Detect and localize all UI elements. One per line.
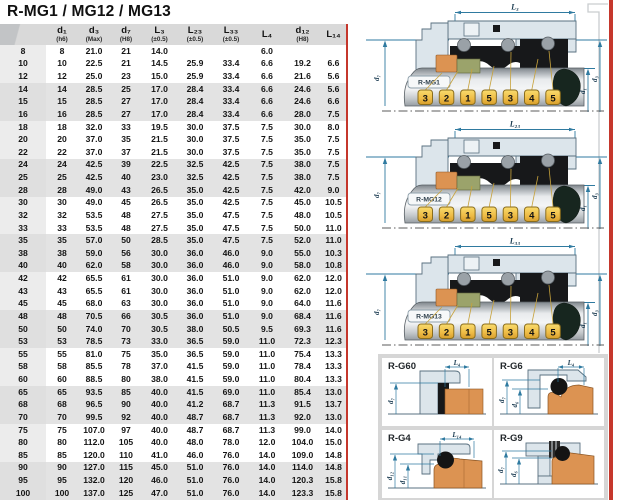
callout-number: 5: [550, 210, 556, 221]
table-cell: 30.5: [142, 323, 177, 336]
table-cell: 65.5: [78, 272, 110, 285]
table-cell: 28.4: [177, 96, 213, 109]
table-cell: 21.5: [142, 133, 177, 146]
table-cell: 15.0: [142, 70, 177, 83]
table-cell: 32: [46, 209, 78, 222]
table-cell: 12.0: [249, 436, 285, 449]
table-cell: 32.5: [177, 159, 213, 172]
table-row: 100100137.012547.051.076.014.0123.315.8: [0, 487, 347, 500]
table-cell: 42.5: [213, 184, 249, 197]
table-cell: 16: [0, 108, 46, 121]
table-cell: 7.5: [320, 146, 347, 159]
o-ring: [555, 446, 570, 461]
table-cell: 49.0: [78, 197, 110, 210]
table-cell: 41.5: [177, 386, 213, 399]
table-cell: 85: [0, 449, 46, 462]
table-row: 484870.56630.536.051.09.068.411.6: [0, 310, 347, 323]
table-cell: 14.0: [249, 487, 285, 500]
table-cell: 17.0: [142, 108, 177, 121]
table-cell: 76.0: [213, 474, 249, 487]
table-cell: 36.5: [177, 348, 213, 361]
table-cell: 15.0: [320, 436, 347, 449]
table-cell: 85: [46, 449, 78, 462]
table-cell: 100: [0, 487, 46, 500]
seat-diagram-r-g60: R-G60 L₄ d₇: [382, 358, 492, 426]
table-cell: 32.5: [177, 171, 213, 184]
table-cell: 17.0: [142, 96, 177, 109]
table-cell: 7.5: [249, 222, 285, 235]
table-cell: 33: [0, 222, 46, 235]
table-cell: 12: [0, 70, 46, 83]
column-header: L₄: [249, 24, 285, 45]
table-cell: 9.0: [249, 247, 285, 260]
table-cell: 95: [0, 474, 46, 487]
table-cell: 78.0: [213, 436, 249, 449]
table-cell: 23.0: [142, 171, 177, 184]
table-cell: 93.5: [78, 386, 110, 399]
seat-ring: [445, 389, 483, 414]
table-row: 555581.07535.036.559.011.075.413.3: [0, 348, 347, 361]
table-row: 585885.57837.041.559.011.078.413.3: [0, 361, 347, 374]
table-cell: 85.4: [285, 386, 320, 399]
table-cell: 14.0: [142, 45, 177, 58]
table-cell: 40: [46, 260, 78, 273]
table-cell: 65.5: [78, 285, 110, 298]
table-cell: 30.5: [142, 310, 177, 323]
table-cell: 53.5: [78, 209, 110, 222]
table-cell: 85: [110, 386, 142, 399]
table-cell: 11.3: [249, 411, 285, 424]
table-row: 535378.57333.036.559.011.072.312.3: [0, 335, 347, 348]
spec-table-header: d₁(h6)d₃(Max)d₇(H8)L₃(±0.5)L₂₃(±0.5)L₃₃(…: [0, 24, 347, 45]
drive-pin: [493, 25, 500, 32]
collar-orange: [436, 172, 457, 189]
table-cell: 7.5: [249, 159, 285, 172]
table-cell: 27: [110, 108, 142, 121]
table-cell: 69.0: [213, 386, 249, 399]
table-cell: 15: [0, 96, 46, 109]
table-cell: 7.5: [249, 197, 285, 210]
table-cell: 120.3: [285, 474, 320, 487]
table-cell: 55: [0, 348, 46, 361]
table-cell: 30.0: [142, 285, 177, 298]
table-cell: 41.5: [177, 373, 213, 386]
table-cell: 52.0: [285, 234, 320, 247]
table-cell: 78.5: [78, 335, 110, 348]
table-cell: 16: [46, 108, 78, 121]
table-cell: 7.5: [320, 171, 347, 184]
table-cell: 42.5: [213, 171, 249, 184]
table-cell: 51.0: [213, 272, 249, 285]
table-cell: 21.6: [285, 70, 320, 83]
table-row: 707099.59240.048.768.711.392.013.0: [0, 411, 347, 424]
table-cell: 11.0: [249, 386, 285, 399]
table-cell: 37.0: [142, 361, 177, 374]
table-cell: 80: [0, 436, 46, 449]
column-header: d₃(Max): [78, 24, 110, 45]
table-cell: 78.4: [285, 361, 320, 374]
table-cell: 11.6: [320, 310, 347, 323]
table-cell: 30.0: [142, 272, 177, 285]
table-row: 353557.05028.535.047.57.552.011.0: [0, 234, 347, 247]
callout-number: 1: [465, 210, 471, 221]
d3-dimension-label: d₃: [591, 309, 599, 316]
drive-pin: [493, 142, 500, 149]
table-cell: 11.0: [249, 361, 285, 374]
seat-name-label: R-G6: [500, 361, 523, 372]
table-cell: 33: [46, 222, 78, 235]
column-header: d₇(H8): [110, 24, 142, 45]
top-dimension-label: L₄: [567, 359, 575, 367]
table-cell: 47.5: [213, 209, 249, 222]
table-cell: 9.0: [249, 272, 285, 285]
seat-diagram-r-g6: R-G6 L₄ d₇ d₆: [494, 358, 604, 426]
table-row: 8080112.010540.048.078.012.0104.015.0: [0, 436, 347, 449]
table-cell: 92.0: [285, 411, 320, 424]
table-cell: 10: [0, 58, 46, 71]
table-cell: 42.5: [78, 159, 110, 172]
table-cell: 85.5: [78, 361, 110, 374]
table-cell: 112.0: [78, 436, 110, 449]
table-row: 454568.06330.036.051.09.064.011.6: [0, 298, 347, 311]
table-cell: 46.0: [213, 247, 249, 260]
table-cell: 42.5: [213, 159, 249, 172]
table-cell: 22.5: [142, 159, 177, 172]
table-cell: 35.0: [142, 348, 177, 361]
callout-number: 3: [423, 210, 428, 221]
table-cell: 11.0: [249, 373, 285, 386]
table-cell: 48.7: [177, 411, 213, 424]
table-cell: 72.3: [285, 335, 320, 348]
table-row: 8585120.011041.046.076.014.0109.014.8: [0, 449, 347, 462]
table-cell: 104.0: [285, 436, 320, 449]
table-cell: 68.4: [285, 310, 320, 323]
table-cell: 26.5: [142, 184, 177, 197]
length-dimension-label: L₂₃: [509, 120, 521, 129]
table-cell: 40.0: [142, 386, 177, 399]
table-cell: 109.0: [285, 449, 320, 462]
table-cell: 47.5: [213, 222, 249, 235]
table-cell: 66: [110, 310, 142, 323]
table-cell: 21.0: [78, 45, 110, 58]
top-dimension-label: L₁₄: [451, 431, 462, 439]
callout-number: 5: [487, 327, 493, 338]
left-dimension-label-2: d₆: [511, 401, 519, 408]
length-dimension-label: L₃₃: [509, 237, 521, 246]
table-cell: 25: [0, 171, 46, 184]
table-row: 434365.56130.036.051.09.062.012.0: [0, 285, 347, 298]
table-cell: 51.0: [177, 487, 213, 500]
table-cell: 70: [110, 323, 142, 336]
table-cell: 73: [110, 335, 142, 348]
table-cell: 57.0: [78, 234, 110, 247]
column-header: L₂₃(±0.5): [177, 24, 213, 45]
table-cell: 36.5: [177, 335, 213, 348]
table-cell: 11.6: [320, 323, 347, 336]
table-cell: 38.0: [142, 373, 177, 386]
table-cell: 40.0: [142, 399, 177, 412]
o-ring: [551, 378, 568, 395]
table-cell: 70.5: [78, 310, 110, 323]
table-cell: 33.4: [213, 58, 249, 71]
table-cell: 69.3: [285, 323, 320, 336]
table-cell: 14.0: [320, 424, 347, 437]
table-cell: 6.0: [249, 45, 285, 58]
d7-dimension-label: d₇: [373, 308, 381, 315]
table-cell: 36.0: [177, 272, 213, 285]
table-cell: 27.5: [142, 209, 177, 222]
table-cell: 32.0: [78, 121, 110, 134]
table-row: 9090127.011545.051.076.014.0114.014.8: [0, 462, 347, 475]
column-header: L₃₃(±0.5): [213, 24, 249, 45]
table-cell: 51.0: [213, 310, 249, 323]
table-row: 424265.56130.036.051.09.062.012.0: [0, 272, 347, 285]
table-cell: 70: [0, 411, 46, 424]
table-cell: 25.9: [177, 70, 213, 83]
table-cell: 81.0: [78, 348, 110, 361]
table-cell: [285, 45, 320, 58]
table-row: 323253.54827.535.047.57.548.010.5: [0, 209, 347, 222]
table-cell: 40.0: [142, 411, 177, 424]
table-cell: 76.0: [213, 449, 249, 462]
table-cell: 120.0: [78, 449, 110, 462]
left-dimension-label: d₁₂: [386, 471, 394, 480]
seat-diagram-r-g4: R-G4 L₁₄ d₁₂ d₁₁: [382, 430, 492, 498]
table-cell: 110: [110, 449, 142, 462]
table-cell: 60: [46, 373, 78, 386]
table-cell: 25.9: [177, 58, 213, 71]
table-cell: 33.0: [142, 335, 177, 348]
table-cell: 26.5: [142, 197, 177, 210]
table-row: 7575107.09740.048.768.711.399.014.0: [0, 424, 347, 437]
callout-number: 2: [444, 93, 449, 104]
table-cell: 19.5: [142, 121, 177, 134]
table-cell: 42: [0, 272, 46, 285]
table-cell: 49.0: [78, 184, 110, 197]
table-cell: 43: [110, 184, 142, 197]
table-cell: 28.0: [285, 108, 320, 121]
table-cell: 92: [110, 411, 142, 424]
d7-dimension-label: d₇: [373, 74, 381, 81]
table-cell: 78: [110, 361, 142, 374]
table-cell: 9.0: [249, 298, 285, 311]
table-cell: 76.0: [213, 487, 249, 500]
table-cell: 75: [46, 424, 78, 437]
table-cell: 11.3: [249, 399, 285, 412]
table-cell: 42: [46, 272, 78, 285]
seal-diagram-r-mg12: R-MG12 3215345 L₂₃ d₇ d₁ d₃: [352, 117, 610, 234]
table-cell: 80: [46, 436, 78, 449]
table-cell: 48: [110, 209, 142, 222]
table-cell: 10.5: [320, 197, 347, 210]
table-cell: 50.0: [285, 222, 320, 235]
collar-olive: [457, 59, 480, 73]
table-cell: 61: [110, 285, 142, 298]
callout-number: 2: [444, 327, 449, 338]
table-cell: 48: [110, 222, 142, 235]
table-cell: 65: [0, 386, 46, 399]
callout-numbers: 3215345: [418, 324, 560, 339]
table-cell: 11.0: [249, 348, 285, 361]
table-cell: 58: [46, 361, 78, 374]
column-header: L₁₄: [320, 24, 347, 45]
table-cell: 37.5: [213, 121, 249, 134]
table-cell: 5.6: [320, 70, 347, 83]
table-cell: 10: [46, 58, 78, 71]
table-cell: 21: [110, 45, 142, 58]
table-cell: 21.5: [142, 146, 177, 159]
table-cell: 36.0: [177, 298, 213, 311]
table-cell: 36.0: [177, 260, 213, 273]
table-cell: 12: [46, 70, 78, 83]
table-row: 151528.52717.028.433.46.624.66.6: [0, 96, 347, 109]
table-cell: 30.0: [177, 121, 213, 134]
table-cell: 8: [0, 45, 46, 58]
table-cell: 40: [0, 260, 46, 273]
table-cell: 75: [0, 424, 46, 437]
left-dimension-label: d₇: [498, 396, 506, 403]
table-row: 686896.59040.041.268.711.391.513.7: [0, 399, 347, 412]
table-cell: 37.0: [78, 146, 110, 159]
table-cell: 28: [46, 184, 78, 197]
table-cell: 30: [46, 197, 78, 210]
table-cell: 35: [110, 133, 142, 146]
table-cell: 27: [110, 96, 142, 109]
table-cell: 123.3: [285, 487, 320, 500]
table-cell: 64.0: [285, 298, 320, 311]
table-cell: 25: [46, 171, 78, 184]
table-row: 242442.53922.532.542.57.538.07.5: [0, 159, 347, 172]
table-cell: 10.3: [320, 247, 347, 260]
collar-orange: [436, 289, 457, 306]
table-cell: 63: [110, 298, 142, 311]
table-cell: 13.3: [320, 373, 347, 386]
left-dimension-label-2: d₆: [510, 470, 518, 477]
d1-dimension-label: d₁: [579, 322, 587, 328]
table-cell: 45: [110, 197, 142, 210]
table-cell: 35.0: [285, 146, 320, 159]
table-cell: 95: [46, 474, 78, 487]
table-cell: 27.5: [142, 222, 177, 235]
table-cell: 7.5: [249, 234, 285, 247]
table-cell: 35: [0, 234, 46, 247]
left-dimension-label: d₇: [497, 466, 505, 473]
table-row: 202037.03521.530.037.57.535.07.5: [0, 133, 347, 146]
table-cell: 41.0: [142, 449, 177, 462]
table-cell: 22: [0, 146, 46, 159]
table-cell: 28.4: [177, 83, 213, 96]
table-cell: 80.4: [285, 373, 320, 386]
red-divider-line: [346, 24, 349, 500]
table-cell: 35.0: [177, 234, 213, 247]
callout-numbers: 3215345: [418, 207, 560, 222]
table-cell: 37.5: [213, 146, 249, 159]
collar-orange: [436, 55, 457, 72]
table-row: 656593.58540.041.569.011.085.413.0: [0, 386, 347, 399]
table-cell: 19.2: [285, 58, 320, 71]
callout-number: 1: [465, 93, 471, 104]
seat-diagram-r-g9: R-G9 d₇ d₆: [494, 430, 604, 498]
table-cell: 6.6: [320, 58, 347, 71]
table-cell: 68: [46, 399, 78, 412]
d3-dimension-label: d₃: [591, 75, 599, 82]
table-cell: 46.0: [213, 260, 249, 273]
table-cell: 7.5: [320, 108, 347, 121]
table-cell: 10.8: [320, 260, 347, 273]
table-cell: 58: [110, 260, 142, 273]
seat-diagrams-panel: R-G60 L₄ d₇ R-G6: [378, 354, 608, 500]
table-cell: 14.0: [249, 474, 285, 487]
table-row: 8821.02114.06.0: [0, 45, 347, 58]
table-cell: 55: [46, 348, 78, 361]
table-cell: 41.5: [177, 361, 213, 374]
table-cell: [213, 45, 249, 58]
table-cell: 30.0: [285, 121, 320, 134]
table-cell: 14.8: [320, 462, 347, 475]
table-cell: 12.0: [320, 272, 347, 285]
table-cell: 24.6: [285, 83, 320, 96]
table-cell: 9.0: [249, 310, 285, 323]
table-cell: 50: [110, 234, 142, 247]
table-row: 383859.05630.036.046.09.055.010.3: [0, 247, 347, 260]
table-cell: 6.6: [249, 70, 285, 83]
table-cell: 48: [46, 310, 78, 323]
column-header: d₁(h6): [46, 24, 78, 45]
table-cell: 97: [110, 424, 142, 437]
table-cell: 30.0: [177, 146, 213, 159]
table-cell: 15: [46, 96, 78, 109]
table-cell: 18: [0, 121, 46, 134]
table-cell: 58.0: [285, 260, 320, 273]
table-cell: 35.0: [177, 197, 213, 210]
table-cell: 12.3: [320, 335, 347, 348]
table-cell: 55.0: [285, 247, 320, 260]
seal-diagrams-column: R-MG1 3215345 L₃ d₇ d₁ d₃: [352, 0, 610, 354]
table-cell: 33.4: [213, 70, 249, 83]
table-cell: 45.0: [142, 462, 177, 475]
table-cell: 30.0: [177, 133, 213, 146]
table-cell: 36.0: [177, 310, 213, 323]
table-cell: 90: [46, 462, 78, 475]
callout-number: 4: [529, 210, 535, 221]
table-cell: 15.8: [320, 487, 347, 500]
seat-name-label: R-G4: [388, 433, 411, 444]
table-cell: 42.0: [285, 184, 320, 197]
table-cell: 7.5: [249, 146, 285, 159]
spec-table-body: 8821.02114.06.0101022.52114.525.933.46.6…: [0, 45, 347, 500]
table-cell: 36.0: [177, 247, 213, 260]
collar-olive: [457, 176, 480, 190]
table-cell: 99.0: [285, 424, 320, 437]
table-row: 9595132.012046.051.076.014.0120.315.8: [0, 474, 347, 487]
table-cell: 35.0: [177, 222, 213, 235]
table-cell: 38.0: [285, 171, 320, 184]
table-cell: 125: [110, 487, 142, 500]
table-cell: 33.4: [213, 108, 249, 121]
table-cell: 132.0: [78, 474, 110, 487]
d7-dimension-label: d₇: [373, 191, 381, 198]
table-cell: 9.0: [320, 184, 347, 197]
table-cell: 35.0: [177, 209, 213, 222]
table-cell: 41.2: [177, 399, 213, 412]
left-dimension-label-2: d₁₁: [399, 476, 407, 484]
callout-number: 1: [465, 327, 471, 338]
callout-number: 3: [508, 210, 513, 221]
table-cell: 25: [110, 83, 142, 96]
seal-diagram-r-mg1: R-MG1 3215345 L₃ d₇ d₁ d₃: [352, 0, 610, 117]
table-cell: 127.0: [78, 462, 110, 475]
table-cell: 9.0: [249, 285, 285, 298]
